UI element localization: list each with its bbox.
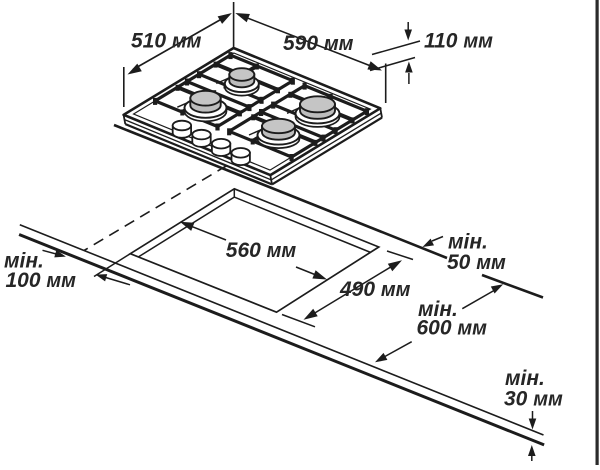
svg-text:110 мм: 110 мм	[424, 30, 493, 53]
svg-text:50 мм: 50 мм	[447, 251, 506, 274]
svg-text:590 мм: 590 мм	[283, 32, 354, 55]
svg-text:100 мм: 100 мм	[6, 269, 77, 292]
svg-text:560 мм: 560 мм	[226, 239, 297, 262]
svg-text:490 мм: 490 мм	[339, 278, 411, 301]
svg-text:510 мм: 510 мм	[131, 30, 202, 53]
svg-text:30 мм: 30 мм	[504, 388, 563, 411]
svg-text:600 мм: 600 мм	[417, 317, 488, 340]
